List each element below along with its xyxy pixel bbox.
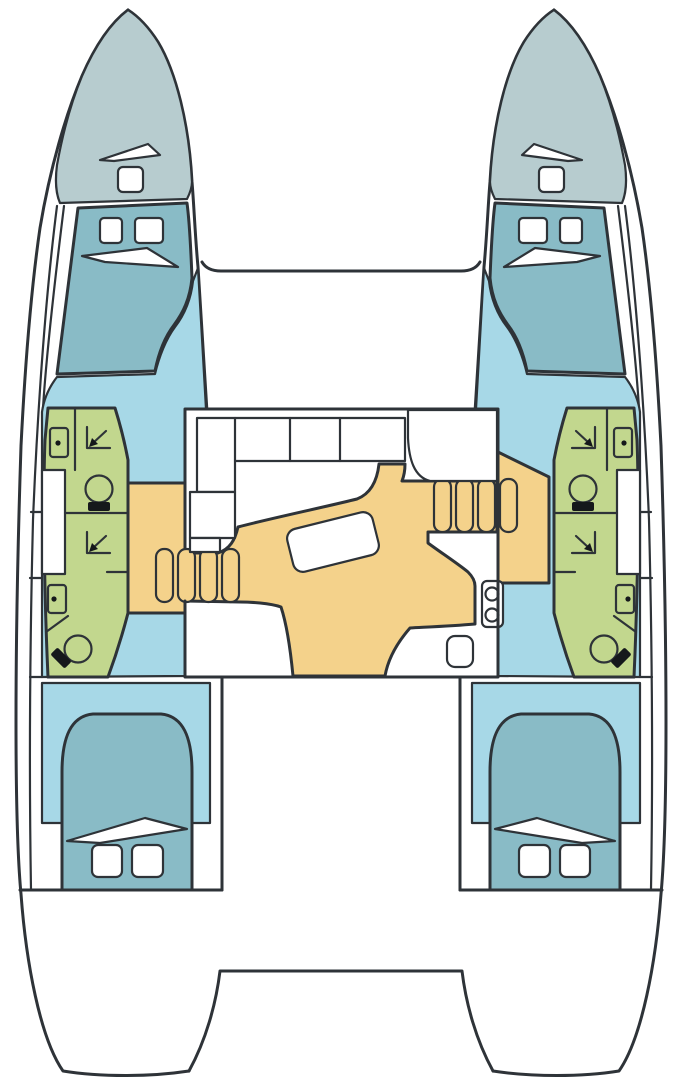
- stair-step: [156, 549, 173, 602]
- bow-deck-hatch: [118, 167, 143, 192]
- forward-cabin-hatch: [100, 218, 122, 243]
- toilet-tank: [88, 502, 110, 511]
- aft-platform-beam-line: [189, 971, 493, 1071]
- aft-cabin-hatch: [132, 845, 163, 877]
- stair-step: [456, 479, 473, 532]
- catamaran-floor-plan: [0, 0, 682, 1080]
- forward-cabin-hatch: [135, 218, 163, 243]
- stair-step: [178, 549, 195, 602]
- stair-step: [222, 549, 239, 602]
- stair-step: [478, 479, 495, 532]
- stair-step: [434, 479, 451, 532]
- stair-step: [500, 479, 517, 532]
- floor-plan-svg: [0, 0, 682, 1080]
- galley-cabinet-foot: [190, 538, 220, 552]
- stair-step: [200, 549, 217, 602]
- galley-cabinet: [190, 492, 235, 538]
- heads-locker-notch: [42, 470, 65, 574]
- foredeck-beam-line: [202, 262, 480, 271]
- aft-berth: [62, 714, 192, 890]
- chart-seat: [408, 410, 497, 481]
- washbasin-tap-dot: [51, 596, 56, 601]
- aft-cabin-hatch: [92, 845, 122, 877]
- washbasin-tap-dot: [55, 440, 60, 445]
